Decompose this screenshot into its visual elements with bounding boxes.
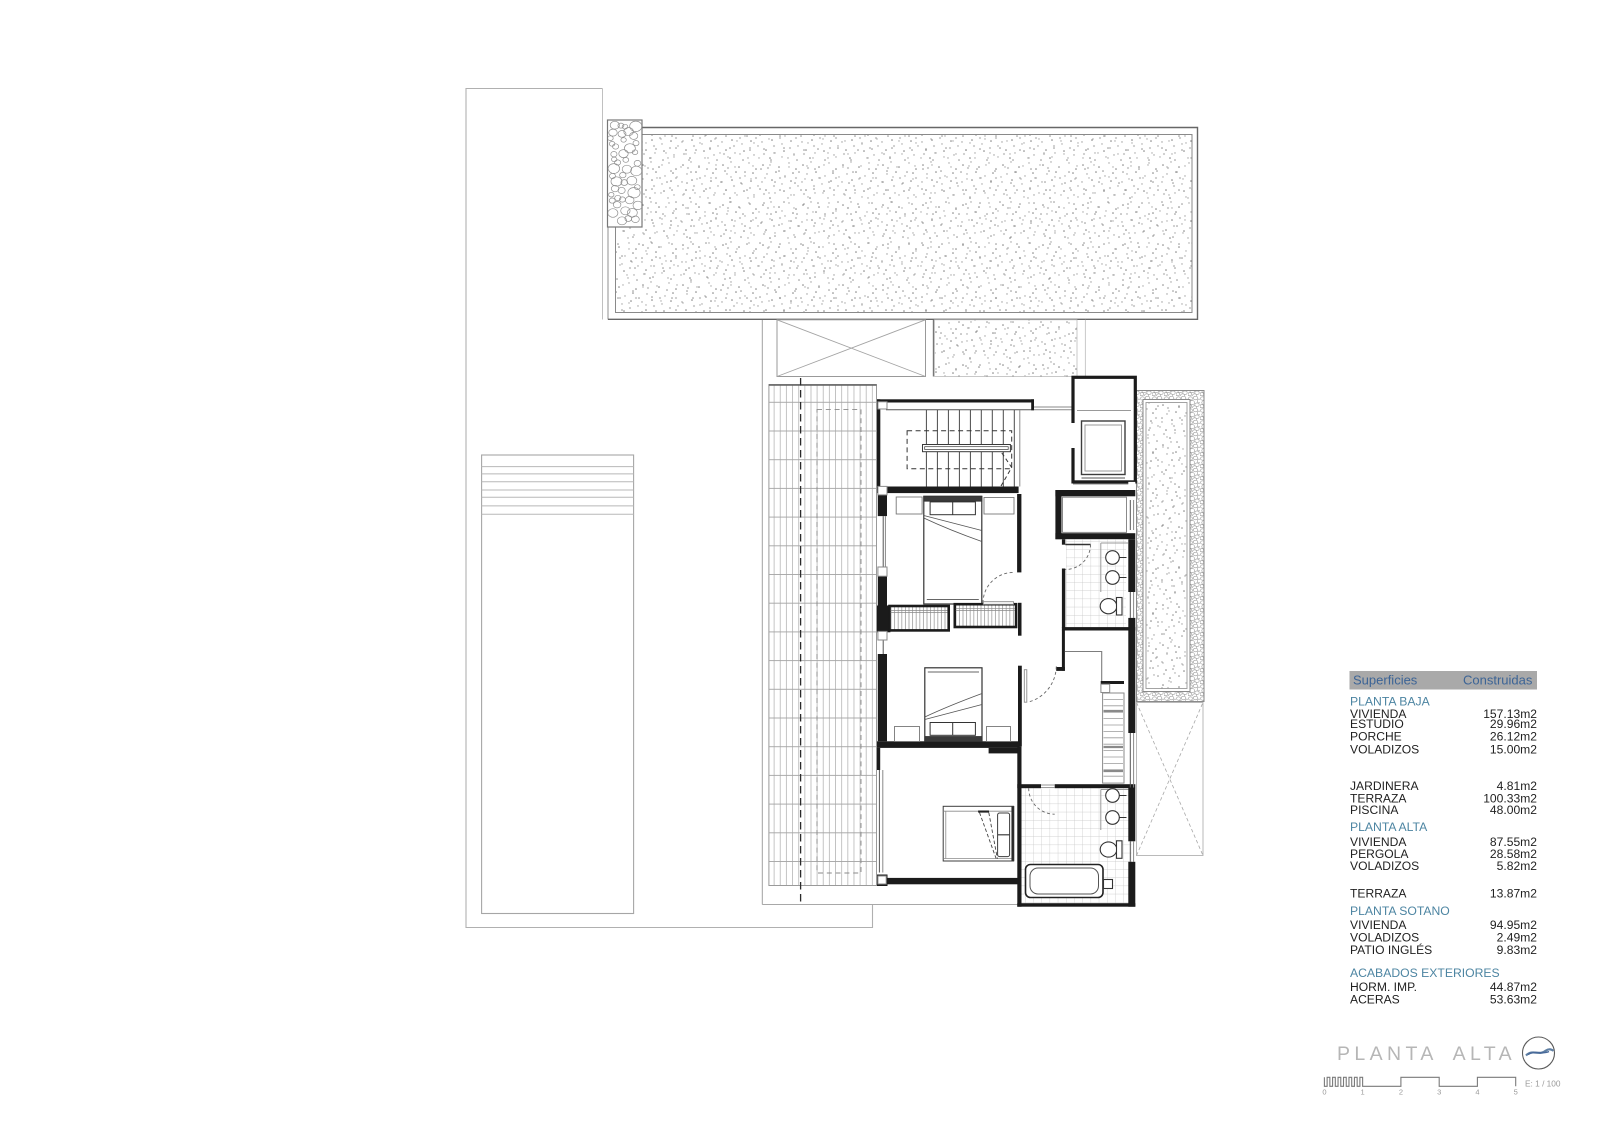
svg-text:48.00m2: 48.00m2 bbox=[1490, 803, 1537, 817]
svg-text:1: 1 bbox=[1361, 1088, 1365, 1097]
svg-text:E: 1 / 100: E: 1 / 100 bbox=[1525, 1079, 1561, 1089]
svg-text:53.63m2: 53.63m2 bbox=[1490, 993, 1537, 1007]
svg-text:PLANTA ALTA: PLANTA ALTA bbox=[1350, 820, 1428, 834]
svg-text:26.12m2: 26.12m2 bbox=[1490, 730, 1537, 744]
svg-text:TERRAZA: TERRAZA bbox=[1350, 887, 1407, 901]
svg-text:4: 4 bbox=[1475, 1088, 1479, 1097]
svg-text:5: 5 bbox=[1514, 1088, 1518, 1097]
svg-text:PATIO INGLÉS: PATIO INGLÉS bbox=[1350, 942, 1432, 957]
svg-text:VOLADIZOS: VOLADIZOS bbox=[1350, 859, 1419, 873]
svg-text:ACERAS: ACERAS bbox=[1350, 993, 1400, 1007]
svg-text:13.87m2: 13.87m2 bbox=[1490, 887, 1537, 901]
svg-text:ACABADOS EXTERIORES: ACABADOS EXTERIORES bbox=[1350, 966, 1500, 980]
svg-text:PLANTA SOTANO: PLANTA SOTANO bbox=[1350, 904, 1450, 918]
svg-text:5.82m2: 5.82m2 bbox=[1497, 859, 1538, 873]
svg-text:2: 2 bbox=[1399, 1088, 1403, 1097]
svg-text:Construidas: Construidas bbox=[1463, 673, 1533, 688]
svg-text:PORCHE: PORCHE bbox=[1350, 730, 1402, 744]
svg-text:15.00m2: 15.00m2 bbox=[1490, 743, 1537, 757]
svg-text:9.83m2: 9.83m2 bbox=[1497, 943, 1538, 957]
svg-text:PISCINA: PISCINA bbox=[1350, 803, 1399, 817]
svg-text:VOLADIZOS: VOLADIZOS bbox=[1350, 743, 1419, 757]
svg-text:PLANTA ALTA: PLANTA ALTA bbox=[1337, 1043, 1516, 1065]
svg-text:0: 0 bbox=[1322, 1088, 1326, 1097]
svg-text:3: 3 bbox=[1437, 1088, 1441, 1097]
svg-text:Superficies: Superficies bbox=[1353, 673, 1418, 688]
